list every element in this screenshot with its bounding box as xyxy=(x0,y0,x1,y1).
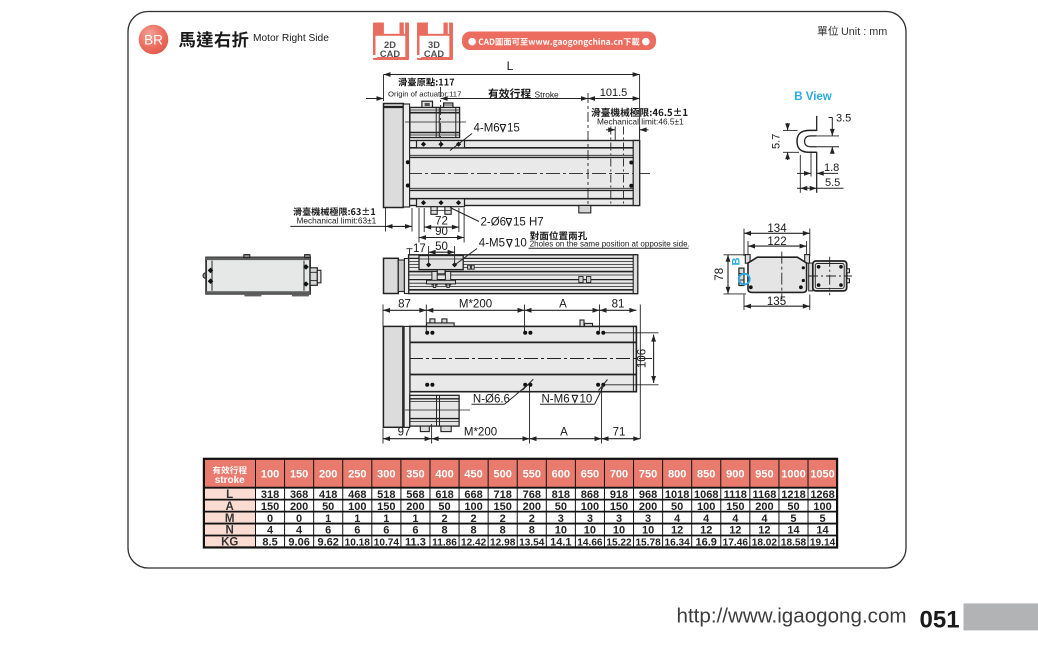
svg-text:1050: 1050 xyxy=(810,468,834,480)
svg-text:15 H7: 15 H7 xyxy=(513,217,544,229)
svg-text:134: 134 xyxy=(767,223,787,235)
svg-text:4-M6: 4-M6 xyxy=(474,123,500,135)
svg-text:200: 200 xyxy=(319,468,337,480)
svg-text:N-Ø6.6: N-Ø6.6 xyxy=(473,393,510,405)
svg-text:N-M6: N-M6 xyxy=(542,393,570,405)
svg-text:90: 90 xyxy=(435,226,448,238)
svg-text:B View: B View xyxy=(794,91,832,103)
svg-text:2holes on the same position at: 2holes on the same position at opposite … xyxy=(530,239,690,248)
svg-text:stroke: stroke xyxy=(215,475,245,486)
svg-text:10: 10 xyxy=(580,393,593,405)
svg-text:http://www.igaogong.com: http://www.igaogong.com xyxy=(677,605,907,628)
svg-text:Mechanical limit:46.5±1: Mechanical limit:46.5±1 xyxy=(597,117,684,127)
svg-text:700: 700 xyxy=(610,468,628,480)
svg-text:M*200: M*200 xyxy=(459,298,492,310)
svg-text:15: 15 xyxy=(507,123,520,135)
svg-text:BR: BR xyxy=(144,32,163,47)
svg-text:800: 800 xyxy=(668,468,686,480)
svg-text:4-M5: 4-M5 xyxy=(479,238,505,250)
svg-text:5.7: 5.7 xyxy=(771,134,783,149)
svg-text:150: 150 xyxy=(290,468,308,480)
svg-text:750: 750 xyxy=(639,468,657,480)
svg-text:350: 350 xyxy=(406,468,424,480)
svg-text:17: 17 xyxy=(413,243,426,255)
svg-text:900: 900 xyxy=(726,468,744,480)
svg-text:B: B xyxy=(731,257,743,265)
svg-text:Mechanical limit:63±1: Mechanical limit:63±1 xyxy=(297,216,377,226)
svg-text:400: 400 xyxy=(435,468,453,480)
svg-text:L: L xyxy=(507,59,514,73)
svg-text:A: A xyxy=(560,427,568,439)
svg-text:650: 650 xyxy=(581,468,599,480)
svg-text:101.5: 101.5 xyxy=(600,87,628,99)
svg-text:250: 250 xyxy=(348,468,366,480)
svg-text:122: 122 xyxy=(767,236,786,248)
svg-text:5.5: 5.5 xyxy=(825,177,840,189)
svg-text:50: 50 xyxy=(435,241,448,253)
svg-text:600: 600 xyxy=(552,468,570,480)
svg-text:81: 81 xyxy=(612,298,625,310)
svg-text:3.5: 3.5 xyxy=(836,112,851,124)
svg-text:Origin of actuator:117: Origin of actuator:117 xyxy=(388,90,461,99)
svg-text:CAD: CAD xyxy=(424,49,444,59)
svg-text:450: 450 xyxy=(464,468,482,480)
svg-text:97: 97 xyxy=(398,427,411,439)
svg-text:051: 051 xyxy=(920,607,960,634)
svg-text:500: 500 xyxy=(494,468,512,480)
svg-text:1000: 1000 xyxy=(781,468,805,480)
svg-text:106: 106 xyxy=(636,349,648,368)
svg-text:71: 71 xyxy=(613,427,626,439)
svg-text:950: 950 xyxy=(755,468,773,480)
svg-text:78: 78 xyxy=(714,268,726,281)
svg-text:135: 135 xyxy=(767,296,786,308)
svg-text:850: 850 xyxy=(697,468,715,480)
svg-text:87: 87 xyxy=(398,298,411,310)
svg-text:A: A xyxy=(559,298,567,310)
svg-text:M*200: M*200 xyxy=(464,427,497,439)
svg-text:Motor Right Side: Motor Right Side xyxy=(253,33,329,44)
svg-text:Unit : mm: Unit : mm xyxy=(841,26,887,38)
svg-text:300: 300 xyxy=(377,468,395,480)
svg-text:550: 550 xyxy=(523,468,541,480)
svg-text:10: 10 xyxy=(514,238,527,250)
svg-text:100: 100 xyxy=(261,468,279,480)
svg-text:1.8: 1.8 xyxy=(824,162,839,174)
svg-text:Stroke: Stroke xyxy=(535,90,560,100)
svg-text:CAD: CAD xyxy=(380,49,400,59)
svg-text:2-Ø6: 2-Ø6 xyxy=(481,217,507,229)
